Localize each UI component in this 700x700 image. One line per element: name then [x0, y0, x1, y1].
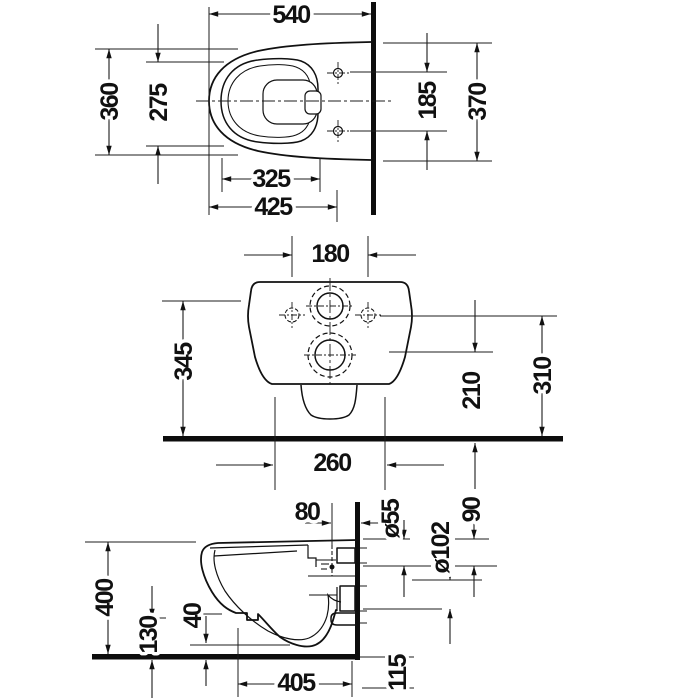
drawing-line	[308, 545, 316, 567]
dim-label-425: 425	[254, 193, 293, 221]
wall-line-side	[355, 502, 360, 660]
dim-label-40: 40	[179, 603, 207, 628]
floor-line-side	[92, 654, 358, 660]
drawing-line	[214, 551, 297, 556]
dim-label-130: 130	[135, 616, 163, 654]
seat-detail-side	[210, 545, 355, 576]
drawing-canvas: 540 360 275 185 370 325 425	[0, 0, 700, 700]
bowl-outline-side	[201, 540, 357, 647]
extension-lines-rear	[162, 236, 557, 490]
flush-valve-outline	[305, 91, 321, 114]
dim-label-180: 180	[311, 240, 349, 268]
dim-label-325: 325	[252, 165, 291, 193]
floor-line-rear	[163, 436, 563, 442]
dim-label-115: 115	[384, 653, 412, 690]
side-view: 80 ø55 90 ø102 400 130 40 405 115	[85, 497, 497, 698]
dim-label-400: 400	[91, 579, 119, 617]
outlet-connector-side	[340, 586, 355, 611]
dimensions-side: 80 ø55 90 ø102 400 130 40 405 115	[91, 497, 486, 698]
dim-label-540: 540	[272, 1, 310, 29]
inlet-connector-side	[337, 548, 355, 563]
dim-label-185: 185	[414, 81, 442, 120]
wall-line-plan	[371, 2, 376, 215]
dim-label-o55: ø55	[377, 498, 405, 538]
dimensions-rear: 180 345 210 310 260	[170, 240, 557, 489]
plan-view: 540 360 275 185 370 325 425	[95, 1, 492, 222]
dim-label-345: 345	[170, 342, 198, 381]
dim-label-275: 275	[145, 83, 173, 122]
drawing-line	[210, 545, 308, 548]
rear-view: 180 345 210 310 260	[162, 236, 563, 490]
dim-label-310: 310	[529, 357, 557, 395]
dim-label-o102: ø102	[427, 522, 455, 574]
dim-label-90: 90	[458, 497, 486, 522]
dim-label-370: 370	[464, 83, 492, 121]
dim-label-260: 260	[313, 449, 351, 477]
outlet-outline-rear	[301, 385, 357, 419]
dim-label-360: 360	[96, 83, 124, 121]
inlet-center-mark	[330, 565, 335, 570]
technical-drawing: 540 360 275 185 370 325 425	[0, 0, 700, 700]
dim-label-210: 210	[458, 372, 486, 410]
dim-label-80: 80	[295, 498, 320, 526]
dim-label-405: 405	[277, 669, 316, 697]
